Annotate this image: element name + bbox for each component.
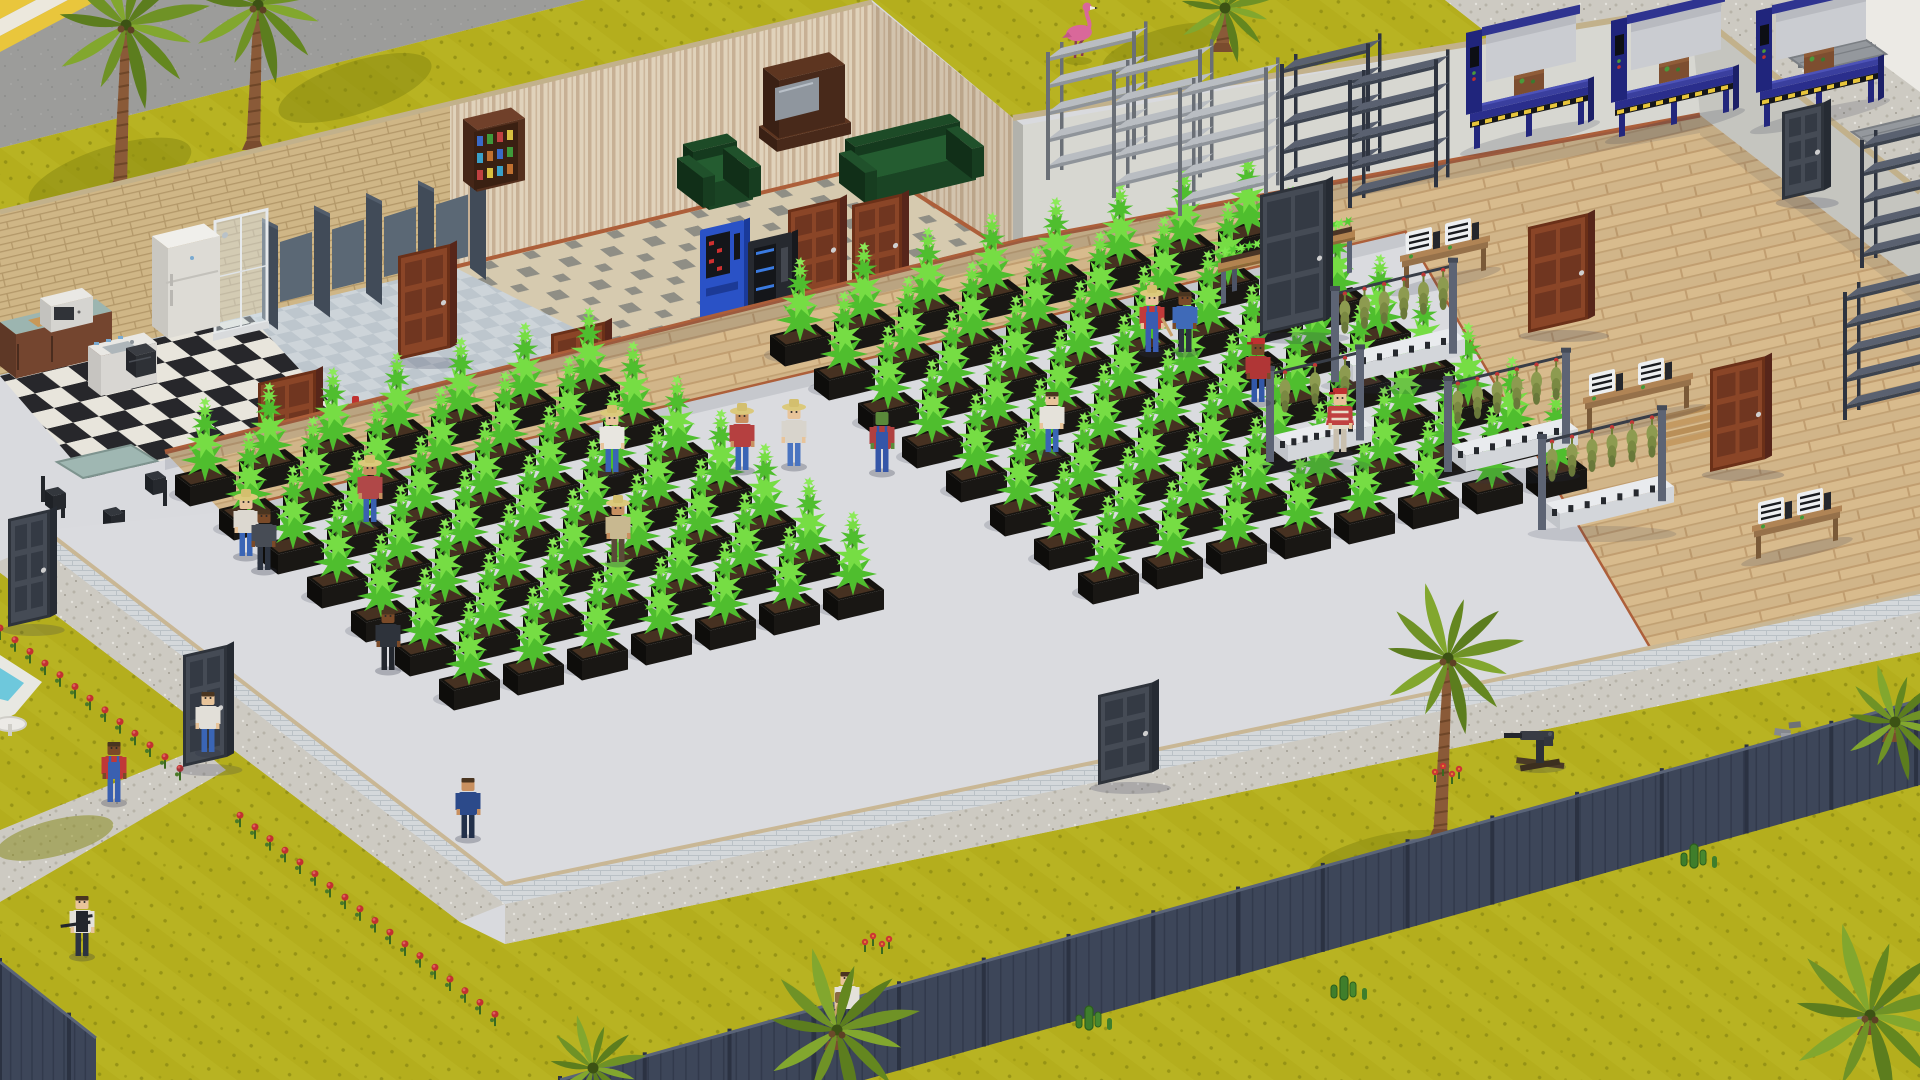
- gray-wall-end: [1013, 118, 1023, 255]
- arcade-machine-blue[interactable]: [700, 217, 750, 322]
- storage-shelf[interactable]: [463, 107, 525, 191]
- metal-shelf[interactable]: [1348, 49, 1450, 208]
- shower-frame: [213, 209, 269, 341]
- tv-cabinet[interactable]: [759, 52, 851, 152]
- refrigerator[interactable]: [152, 224, 220, 339]
- shower-stall[interactable]: [213, 209, 269, 341]
- metal-shelf[interactable]: [1280, 33, 1382, 192]
- game-viewport[interactable]: [0, 0, 1920, 1080]
- metal-shelf[interactable]: [1178, 57, 1280, 216]
- game-scene-canvas[interactable]: [0, 0, 1920, 1080]
- kitchen-crate[interactable]: [126, 343, 156, 378]
